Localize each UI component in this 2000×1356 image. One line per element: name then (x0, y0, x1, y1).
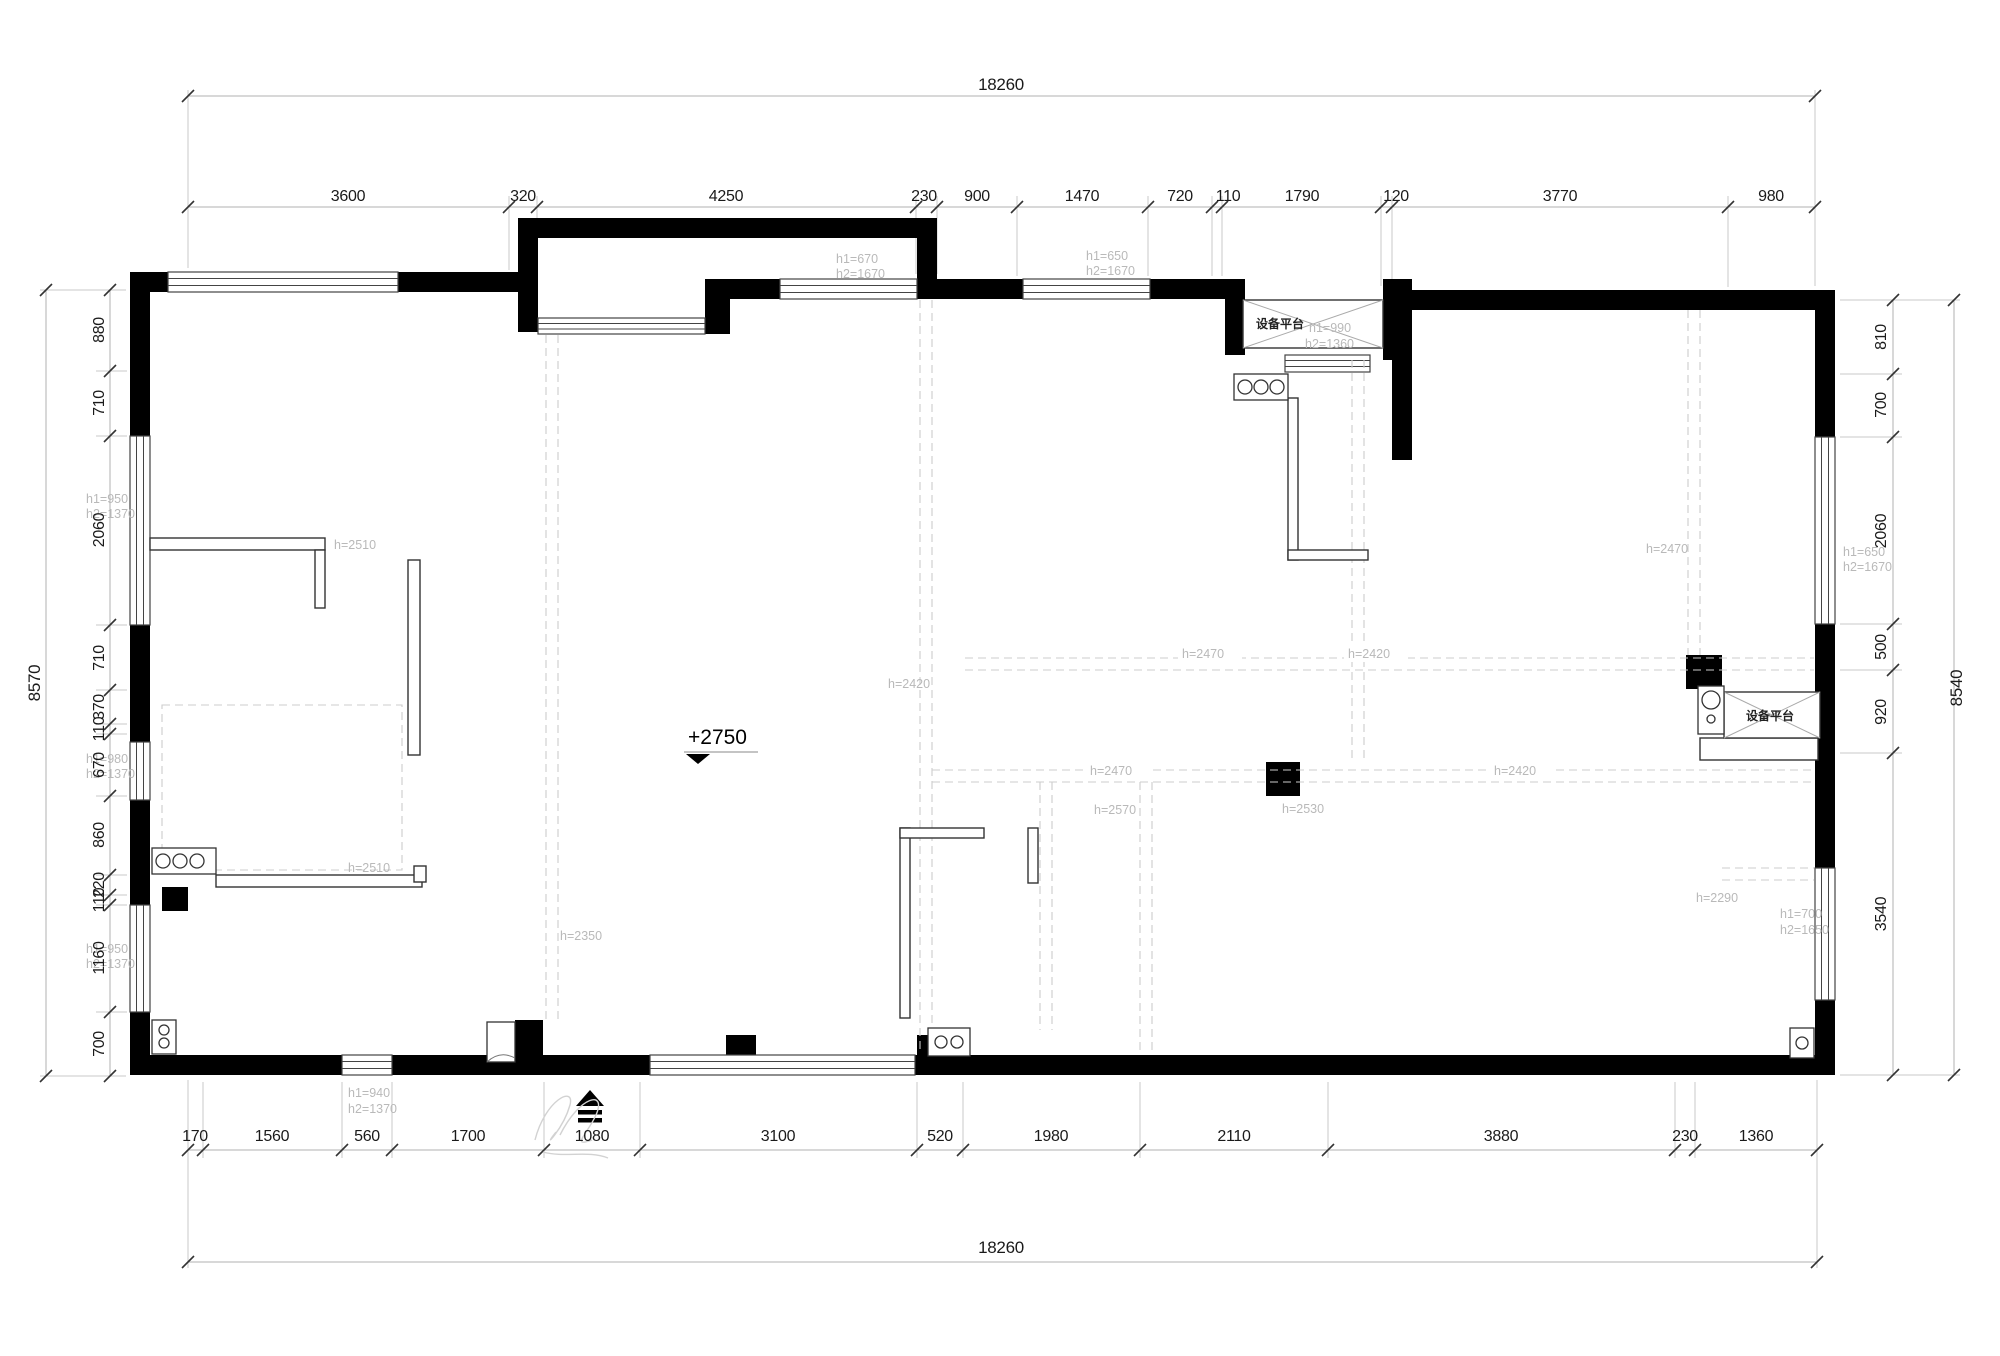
height-label: h=2510 (348, 861, 390, 875)
dim-top: 3770 (1543, 188, 1578, 205)
height-label: h=2570 (1094, 803, 1136, 817)
dim-left: 110 (91, 887, 108, 912)
dim-left: 370 (91, 694, 108, 720)
structural-column (1266, 762, 1300, 796)
dim-top: 980 (1758, 188, 1784, 205)
height-label: h1=950 (86, 492, 128, 506)
dim-top: 1790 (1285, 188, 1320, 205)
dim-top-total: 18260 (978, 75, 1024, 94)
height-label: h=2470 (1182, 647, 1224, 661)
height-label: h2=1670 (836, 267, 885, 281)
dim-left: 1160 (91, 941, 108, 975)
fixtures (152, 374, 1814, 1062)
dim-bottom: 3880 (1484, 1128, 1519, 1145)
dim-bottom: 1980 (1034, 1128, 1069, 1145)
dim-left: 110 (91, 716, 108, 741)
window (130, 436, 150, 625)
floor-plan-canvas: +2750 h1=670 h2=1670 h1=650 h2=1670 h1=9… (0, 0, 2000, 1356)
equipment-platform-top-label: 设备平台 (1256, 316, 1304, 331)
dim-bottom: 2110 (1217, 1128, 1251, 1145)
window (1285, 355, 1370, 372)
dim-top: 230 (911, 188, 937, 205)
window (780, 279, 917, 299)
dim-left: 710 (91, 390, 108, 416)
dim-right: 700 (1873, 392, 1890, 418)
dim-bottom: 3100 (761, 1128, 796, 1145)
interior-partitions (150, 398, 1818, 1018)
height-label: h=2420 (1494, 764, 1536, 778)
dim-top: 720 (1167, 188, 1193, 205)
balcony-window (650, 1055, 915, 1075)
window (168, 272, 398, 292)
sink-right (1698, 686, 1724, 734)
cooktop-top-right (1234, 374, 1288, 400)
height-label: h2=1650 (1780, 923, 1829, 937)
exterior-walls (130, 218, 1835, 1075)
dim-right: 810 (1873, 324, 1890, 350)
dim-left: 2060 (91, 512, 108, 547)
height-label: h1=650 (1086, 249, 1128, 263)
dim-top: 3600 (331, 188, 366, 205)
windows (130, 272, 1835, 1075)
dim-right: 920 (1873, 699, 1890, 725)
height-label: h=2470 (1090, 764, 1132, 778)
dim-top: 120 (1383, 188, 1409, 205)
dim-left: 860 (91, 822, 108, 848)
dim-right-total: 8540 (1947, 670, 1966, 707)
dim-bottom: 170 (182, 1128, 208, 1145)
dim-bottom: 1560 (255, 1128, 290, 1145)
height-label: h2=1360 (1305, 337, 1354, 351)
dim-bottom-total: 18260 (978, 1238, 1024, 1257)
dimension-ticks (40, 90, 1960, 1268)
dim-top: 1470 (1065, 188, 1100, 205)
dim-bottom: 560 (354, 1128, 380, 1145)
dim-right: 3540 (1873, 896, 1890, 931)
dim-bottom: 1360 (1739, 1128, 1774, 1145)
cooktop-left (152, 848, 216, 874)
dim-left: 670 (91, 752, 108, 778)
dimension-text: 18260 18260 8570 8540 3600 320 4250 230 … (25, 75, 1966, 1257)
height-label: h=2420 (1348, 647, 1390, 661)
dim-top: 110 (1216, 188, 1241, 205)
dim-right: 2060 (1873, 513, 1890, 548)
floor-plan-page: +2750 h1=670 h2=1670 h1=650 h2=1670 h1=9… (0, 0, 2000, 1356)
height-label: h=2290 (1696, 891, 1738, 905)
window (1023, 279, 1150, 299)
height-label: h=2510 (334, 538, 376, 552)
height-label: h=2530 (1282, 802, 1324, 816)
height-annotations: h1=670 h2=1670 h1=650 h2=1670 h1=990 h2=… (86, 249, 1892, 1116)
dim-left: 710 (91, 645, 108, 671)
window (538, 318, 705, 334)
window (1815, 437, 1835, 624)
dim-bottom: 1700 (451, 1128, 486, 1145)
dim-top: 4250 (709, 188, 744, 205)
elevation-marker: +2750 (684, 726, 758, 764)
dim-bottom: 520 (927, 1128, 953, 1145)
height-label: h=2420 (888, 677, 930, 691)
elevation-label: +2750 (688, 726, 747, 749)
dim-bottom: 230 (1672, 1128, 1698, 1145)
equipment-platform-right-label: 设备平台 (1746, 708, 1794, 723)
dimension-lines (40, 90, 1960, 1268)
dim-left: 700 (91, 1031, 108, 1057)
height-label: h2=1670 (1086, 264, 1135, 278)
fixture-bottom-left (152, 1020, 176, 1054)
dim-right: 500 (1873, 634, 1890, 660)
height-label: h1=940 (348, 1086, 390, 1100)
fixture-bottom-right (1790, 1028, 1814, 1058)
height-label: h1=670 (836, 252, 878, 266)
interior-wall-chunks (162, 360, 1722, 1058)
height-label: h=2350 (560, 929, 602, 943)
dim-bottom: 1080 (575, 1128, 610, 1145)
window (342, 1055, 392, 1075)
height-label: h1=990 (1309, 321, 1351, 335)
label-backers (1086, 646, 1554, 778)
dim-left-total: 8570 (25, 665, 44, 702)
dim-left: 880 (91, 317, 108, 343)
door-leaf (487, 1022, 515, 1062)
height-label: h2=1670 (1843, 560, 1892, 574)
stove-bottom-mid (928, 1028, 970, 1056)
height-label: h1=700 (1780, 907, 1822, 921)
dim-top: 320 (510, 188, 536, 205)
height-label: h2=1370 (348, 1102, 397, 1116)
dim-top: 900 (964, 188, 990, 205)
height-label: h=2470 (1646, 542, 1688, 556)
